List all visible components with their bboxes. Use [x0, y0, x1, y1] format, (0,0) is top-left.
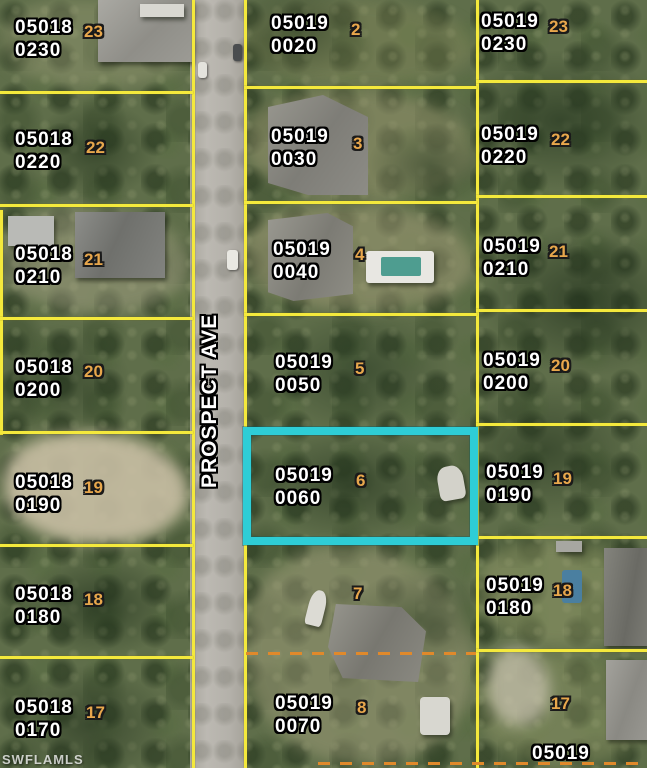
parcel-boundary-line: [192, 0, 195, 768]
lot-number: 19: [84, 478, 103, 498]
parcel-strap-label: 050190030: [271, 125, 329, 171]
house-roof: [606, 660, 647, 740]
car: [233, 44, 242, 61]
parcel-strap-label: 050190040: [273, 238, 331, 284]
lot-number: 22: [86, 138, 105, 158]
parcel-strap-label: 050180190: [15, 471, 73, 517]
parcel-boundary-line: [0, 204, 193, 207]
parcel-boundary-line: [476, 423, 647, 426]
parcel-strap-label: 050180170: [15, 696, 73, 742]
parcel-strap-label: 050190070: [275, 692, 333, 738]
lot-number: 23: [549, 17, 568, 37]
parcel-boundary-line: [0, 431, 193, 434]
lot-number: 2: [351, 20, 360, 40]
parcel-strap-label: 050180200: [15, 356, 73, 402]
parcel-boundary-line: [0, 91, 193, 94]
lot-number: 17: [86, 703, 105, 723]
parcel-strap-label: 050190060: [275, 464, 333, 510]
parcel-strap-label: 050180180: [15, 583, 73, 629]
lot-number: 5: [355, 359, 364, 379]
lot-number: 8: [357, 698, 366, 718]
lot-number: 21: [84, 250, 103, 270]
parcel-boundary-line: [0, 656, 193, 659]
parcel-strap-label: 050180230: [15, 16, 73, 62]
shed-roof: [556, 541, 582, 552]
boat: [304, 588, 329, 627]
parcel-boundary-line: [0, 317, 193, 320]
parcel-boundary-line: [244, 201, 477, 204]
lot-number: 4: [355, 245, 364, 265]
swimming-pool: [381, 257, 421, 276]
parcel-strap-label: 050190200: [483, 349, 541, 395]
lot-number: 20: [84, 362, 103, 382]
lot-number: 23: [84, 22, 103, 42]
parcel-boundary-line: [0, 544, 193, 547]
parcel-boundary-line: [244, 313, 477, 316]
lot-number: 21: [549, 242, 568, 262]
lot-number: 3: [353, 134, 362, 154]
car: [198, 62, 207, 78]
lot-number: 22: [551, 130, 570, 150]
parcel-strap-label: 050190220: [481, 123, 539, 169]
car: [227, 250, 238, 270]
mls-watermark: SWFLAMLS: [2, 752, 84, 767]
street-name-label: PROSPECT AVE: [198, 312, 232, 490]
parcel-strap-label: 050190230: [481, 10, 539, 56]
parcel-strap-label: 050180220: [15, 128, 73, 174]
parcel-boundary-line: [476, 309, 647, 312]
parcel-strap-label: 050190190: [486, 461, 544, 507]
parcel-strap-label: 050190050: [275, 351, 333, 397]
house-roof: [604, 548, 647, 646]
lot-number: 19: [553, 469, 572, 489]
trailer: [420, 697, 450, 735]
house-roof: [328, 604, 426, 682]
lot-number: 18: [553, 581, 572, 601]
aerial-parcel-map[interactable]: 050180230 23 050180220 22 050180210 21 0…: [0, 0, 647, 768]
lot-number: 18: [84, 590, 103, 610]
lot-number: 17: [551, 694, 570, 714]
parcel-strap-label: 050190020: [271, 12, 329, 58]
parcel-strap-label: 050190210: [483, 235, 541, 281]
parcel-strap-label: 05019: [532, 742, 590, 765]
dashed-boundary-line: [246, 652, 476, 655]
parcel-boundary-line: [244, 86, 477, 89]
parcel-strap-label: 050180210: [15, 243, 73, 289]
lot-number: 7: [353, 584, 362, 604]
shed-roof: [8, 216, 54, 246]
parcel-boundary-line: [476, 195, 647, 198]
parcel-strap-label: 050190180: [486, 574, 544, 620]
parcel-boundary-line: [476, 0, 479, 768]
parcel-boundary-line: [476, 649, 647, 652]
bare-tree: [488, 648, 550, 726]
parcel-boundary-line: [476, 80, 647, 83]
lot-number: 20: [551, 356, 570, 376]
parcel-boundary-line: [476, 536, 647, 539]
dashed-boundary-line: [318, 762, 647, 765]
parcel-boundary-line: [0, 210, 3, 435]
lot-number: 6: [356, 471, 365, 491]
parked-vehicles: [140, 4, 184, 17]
